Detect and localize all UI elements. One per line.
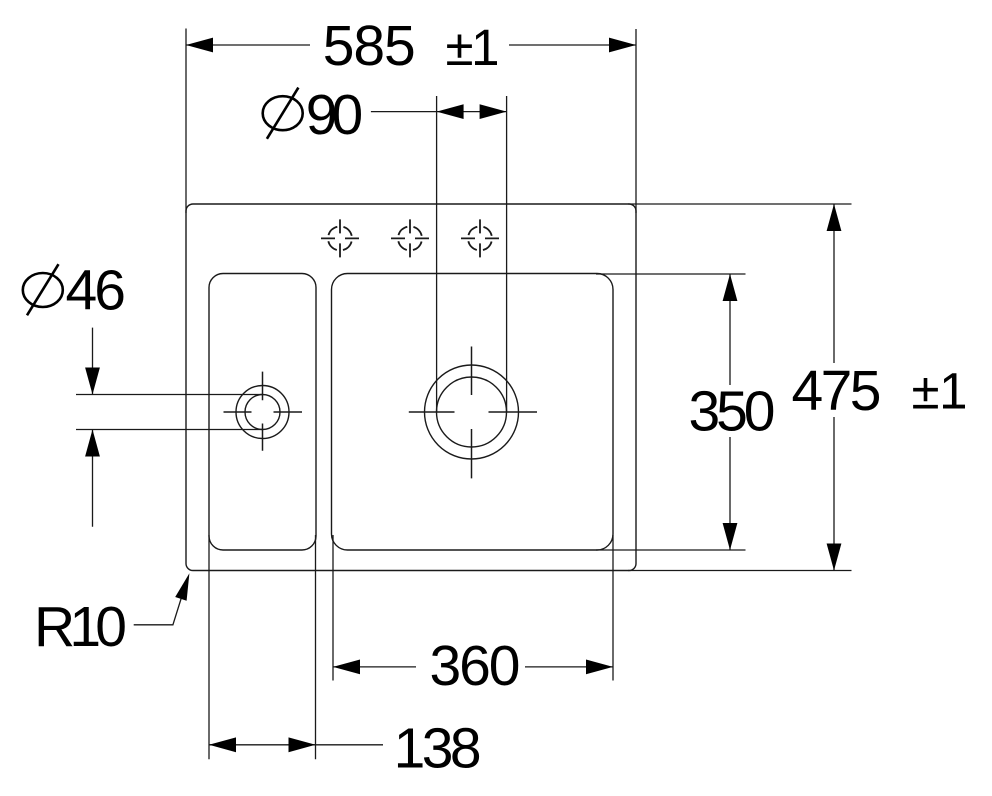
- svg-text:360: 360: [430, 634, 521, 698]
- svg-text:±1: ±1: [446, 19, 500, 76]
- svg-text:350: 350: [689, 379, 776, 443]
- svg-text:46: 46: [66, 258, 127, 322]
- svg-text:585: 585: [323, 14, 416, 78]
- svg-text:R10: R10: [34, 595, 127, 659]
- svg-text:±1: ±1: [912, 362, 968, 419]
- svg-text:475: 475: [792, 359, 882, 423]
- svg-text:138: 138: [394, 716, 482, 780]
- svg-text:90: 90: [306, 83, 364, 147]
